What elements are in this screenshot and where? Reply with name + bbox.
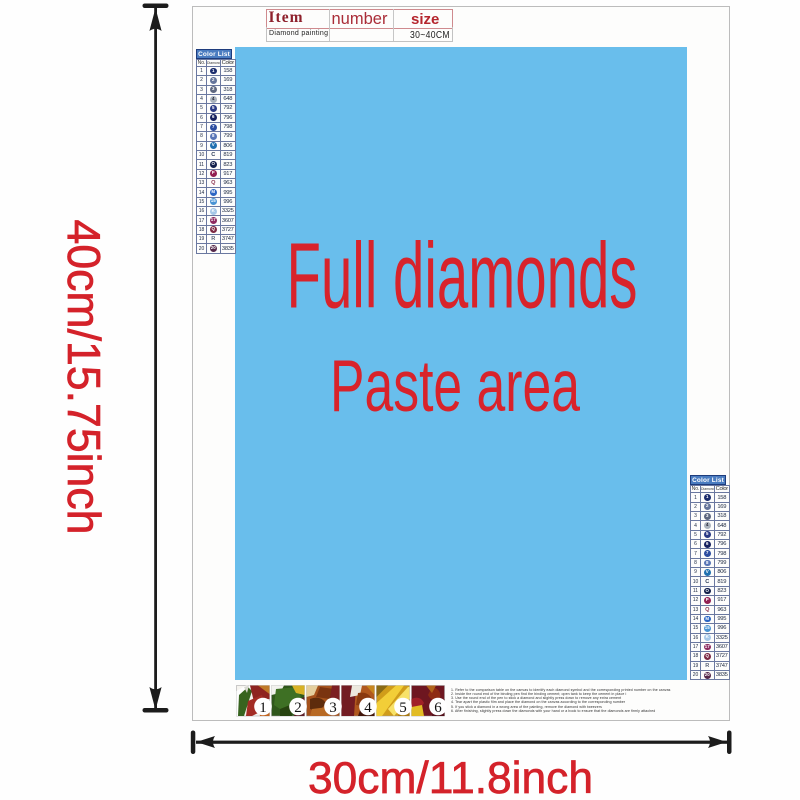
- svg-text:4: 4: [364, 700, 372, 716]
- svg-text:Full diamonds: Full diamonds: [287, 224, 638, 328]
- svg-text:3: 3: [329, 700, 337, 716]
- svg-text:1: 1: [259, 700, 267, 716]
- svg-text:40cm/15.75inch: 40cm/15.75inch: [58, 220, 110, 535]
- svg-text:5: 5: [399, 700, 407, 716]
- svg-text:2: 2: [294, 700, 302, 716]
- svg-text:6: 6: [434, 700, 442, 716]
- svg-text:30cm/11.8inch: 30cm/11.8inch: [308, 754, 593, 800]
- svg-text:Paste area: Paste area: [330, 346, 580, 427]
